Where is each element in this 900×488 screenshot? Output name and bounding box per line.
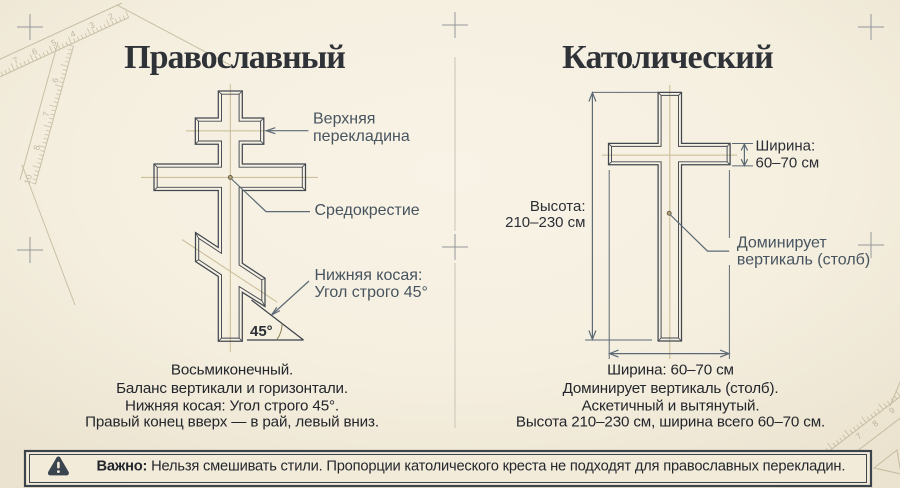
svg-text:Православный: Православный (124, 39, 345, 76)
svg-text:Важно: Нельзя смешивать стили.: Важно: Нельзя смешивать стили. Пропорции… (97, 459, 846, 475)
svg-text:Ширина:: Ширина: (756, 138, 816, 155)
svg-text:Доминирует: Доминирует (737, 235, 828, 252)
svg-text:Верхняя: Верхняя (313, 111, 375, 128)
svg-text:Средокрестие: Средокрестие (315, 202, 420, 219)
svg-text:60–70 см: 60–70 см (756, 155, 820, 172)
svg-text:вертикаль (столб): вертикаль (столб) (737, 252, 870, 269)
svg-text:Нижняя косая: Угол строго 45°.: Нижняя косая: Угол строго 45°. (125, 398, 339, 415)
svg-text:Аскетичный и вытянутый.: Аскетичный и вытянутый. (582, 398, 760, 415)
svg-text:45°: 45° (250, 323, 273, 340)
svg-text:Высота:: Высота: (530, 198, 586, 215)
svg-text:Ширина: 60–70 см: Ширина: 60–70 см (607, 362, 734, 379)
svg-text:Правый конец вверх — в рай, ле: Правый конец вверх — в рай, левый вниз. (85, 414, 379, 431)
svg-text:Нижняя косая:: Нижняя косая: (315, 267, 423, 284)
svg-text:Восьмиконечный.: Восьмиконечный. (171, 362, 293, 379)
svg-text:Угол строго 45°: Угол строго 45° (315, 284, 428, 301)
svg-text:Высота 210–230 см, ширина всег: Высота 210–230 см, ширина всего 60–70 см… (516, 414, 825, 431)
svg-text:перекладина: перекладина (313, 128, 410, 145)
svg-text:Католический: Католический (562, 39, 773, 76)
svg-text:Баланс вертикали и горизонтали: Баланс вертикали и горизонтали. (116, 380, 348, 397)
svg-text:210–230 см: 210–230 см (505, 214, 585, 231)
svg-text:Доминирует вертикаль (столб).: Доминирует вертикаль (столб). (563, 380, 779, 397)
